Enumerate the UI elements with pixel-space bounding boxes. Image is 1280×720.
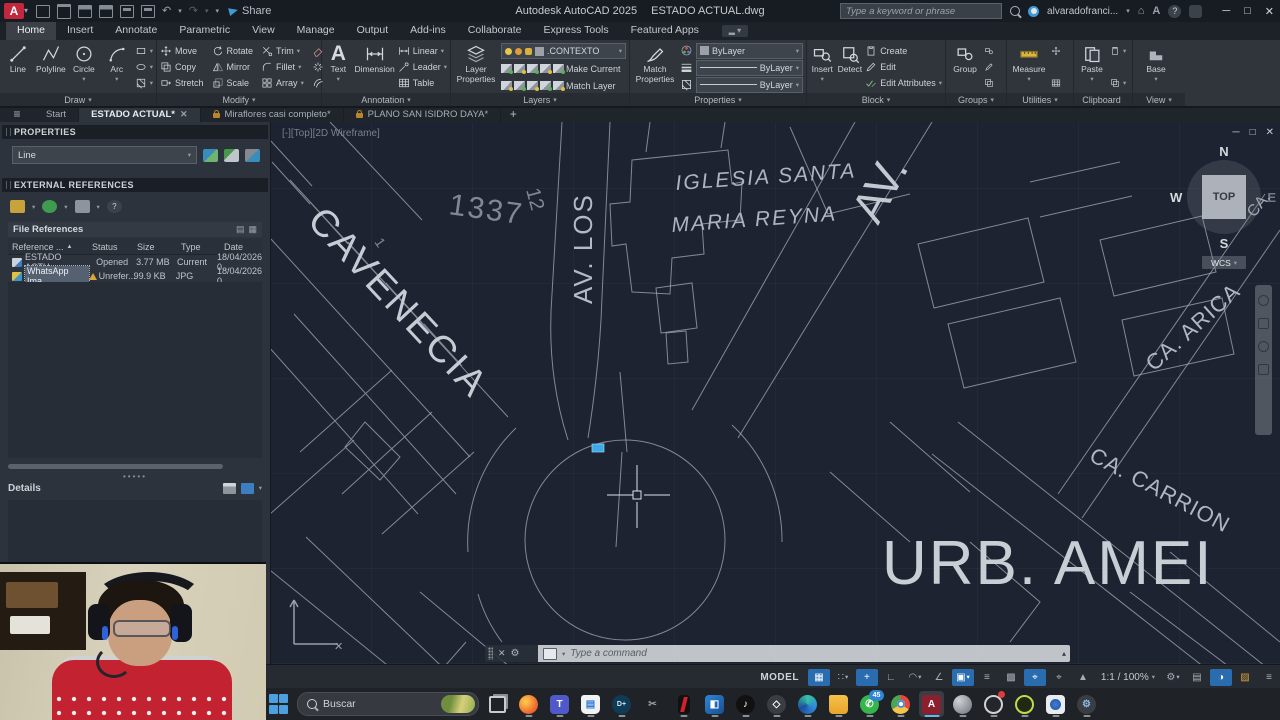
rotate-tool[interactable]: Rotate: [212, 44, 254, 58]
layer-walk-icon[interactable]: [501, 81, 512, 90]
make-current-icon[interactable]: [553, 64, 564, 73]
match-layer-label[interactable]: Match Layer: [566, 81, 616, 91]
object-snap-icon[interactable]: ▣▾: [952, 669, 974, 686]
command-placeholder[interactable]: Type a command: [570, 648, 647, 659]
clean-screen-icon[interactable]: ◑: [1210, 669, 1232, 686]
groups-panel-label[interactable]: Groups: [946, 93, 1006, 106]
layer-isolate-icon[interactable]: [501, 64, 512, 73]
file-explorer-icon[interactable]: [826, 691, 851, 717]
recording-dot: [998, 691, 1005, 698]
array-tool[interactable]: Array▾: [261, 76, 304, 90]
line-tool[interactable]: Line: [3, 42, 33, 93]
file-tab-plano-san-isidro[interactable]: PLANO SAN ISIDRO DAYA*: [344, 106, 502, 122]
microsoft-store-icon[interactable]: ▤: [578, 691, 603, 717]
maximize-button[interactable]: □: [1244, 5, 1251, 18]
xref-help-icon[interactable]: ?: [107, 200, 122, 213]
navigation-bar[interactable]: [1255, 285, 1272, 435]
ribbon-tab-bar: Home Insert Annotate Parametric View Man…: [0, 22, 1280, 40]
panel-clipboard: Paste▾ ▾ ▾ Clipboard: [1074, 40, 1133, 106]
tab-collaborate[interactable]: Collaborate: [457, 22, 533, 40]
tiktok-icon[interactable]: ♪: [733, 691, 758, 717]
table-tool[interactable]: Table: [398, 76, 447, 90]
details-area: [8, 500, 262, 564]
drawing-close-icon[interactable]: ✕: [1266, 127, 1274, 138]
edit-attributes-button[interactable]: Edit Attributes▾: [865, 76, 942, 90]
viewcube-wcs-menu[interactable]: WCS▾: [1202, 256, 1246, 269]
group-edit-button[interactable]: [984, 60, 994, 74]
window-title: Autodesk AutoCAD 2025 ESTADO ACTUAL.dwg: [515, 5, 764, 17]
mirror-tool[interactable]: Mirror: [212, 60, 254, 74]
move-tool[interactable]: Move: [160, 44, 204, 58]
search-highlight-thumbnail[interactable]: [441, 695, 475, 713]
edge-icon[interactable]: [795, 691, 820, 717]
search-label: Buscar: [323, 698, 356, 710]
print-icon[interactable]: [141, 5, 155, 18]
undo-caret-icon[interactable]: ▾: [178, 8, 182, 15]
file-tab-bar: ≡ Start ESTADO ACTUAL*✕ Miraflores casi …: [0, 106, 1280, 122]
save-as-icon[interactable]: [99, 5, 113, 18]
layer-on-tool-icon[interactable]: [527, 81, 538, 90]
new-file-icon[interactable]: [36, 5, 50, 18]
layer-on-icon: [505, 48, 512, 55]
match-properties-button[interactable]: Match Properties: [633, 42, 677, 93]
layer-unisolate-icon[interactable]: [514, 64, 525, 73]
cad-drawing: [-][Top][2D Wireframe] CAVENECIA 1337 12…: [270, 122, 1280, 664]
autodesk-icon[interactable]: A: [1152, 6, 1160, 17]
3d-object-snap-icon[interactable]: ⌖: [1048, 669, 1070, 686]
details-header[interactable]: Details ▾: [8, 480, 262, 496]
measure-button[interactable]: Measure▾: [1010, 42, 1048, 93]
viewcube-south[interactable]: S: [1176, 236, 1272, 251]
pan-icon[interactable]: [1258, 318, 1269, 329]
ungroup-button[interactable]: [984, 44, 994, 58]
zoom-extents-icon[interactable]: [1258, 341, 1269, 352]
district-label-urb: URB. AMEI: [882, 529, 1214, 598]
block-panel-label[interactable]: Block: [807, 93, 945, 106]
tab-output[interactable]: Output: [346, 22, 400, 40]
refresh-icon[interactable]: [42, 200, 57, 213]
utilities-panel-label[interactable]: Utilities: [1007, 93, 1073, 106]
teams-icon[interactable]: T: [547, 691, 572, 717]
layer-lock-icon: [525, 48, 532, 55]
lot-number-1337: 1337: [447, 188, 526, 231]
grid-toggle-icon[interactable]: ▦: [808, 669, 830, 686]
copy-tool[interactable]: Copy: [160, 60, 204, 74]
warning-icon: [89, 273, 97, 280]
layer-properties-button[interactable]: Layer Properties: [454, 42, 498, 93]
command-history-toggle-icon[interactable]: ▴: [1058, 645, 1070, 662]
settings-icon[interactable]: ⚙: [1074, 691, 1099, 717]
open-file-icon[interactable]: [57, 4, 71, 19]
command-customize-icon[interactable]: ⚙: [511, 648, 520, 659]
make-current-label[interactable]: Make Current: [566, 64, 621, 74]
file-tab-start[interactable]: Start: [34, 106, 79, 122]
viewcube[interactable]: N W E TOP S WCS▾: [1176, 144, 1272, 270]
headset-mic: [96, 646, 132, 678]
autocad-taskbar-icon[interactable]: A: [919, 691, 944, 717]
modify-panel-label[interactable]: Modify: [157, 93, 321, 106]
share-label: Share: [242, 5, 271, 17]
leader-tool[interactable]: Leader▾: [398, 60, 447, 74]
disney-plus-icon[interactable]: D+: [609, 691, 634, 717]
undo-icon[interactable]: ↶: [162, 6, 171, 17]
draw-panel-label[interactable]: Draw: [0, 93, 156, 106]
linetype-icon: [680, 78, 693, 91]
tree-view-icon[interactable]: ▦: [248, 224, 257, 235]
create-block-button[interactable]: Create: [865, 44, 942, 58]
clipboard-panel-label[interactable]: Clipboard: [1074, 93, 1132, 106]
layer-select[interactable]: .CONTEXTO ▾: [501, 43, 626, 59]
change-path-icon[interactable]: [75, 200, 90, 213]
help-icon[interactable]: ?: [1168, 5, 1181, 18]
tab-annotate[interactable]: Annotate: [104, 22, 168, 40]
base-view-button[interactable]: Base▾: [1136, 42, 1176, 93]
match-layer-icon[interactable]: [553, 81, 564, 90]
full-navigation-wheel-icon[interactable]: [1258, 295, 1269, 306]
graphics-performance-icon[interactable]: ▨: [1234, 669, 1256, 686]
list-view-icon[interactable]: ▤: [236, 224, 245, 235]
layer-freeze-icon: [515, 48, 522, 55]
unity-icon[interactable]: ◇: [764, 691, 789, 717]
user-caret-icon[interactable]: ▾: [1126, 8, 1130, 15]
file-tab-miraflores[interactable]: Miraflores casi completo*: [201, 106, 344, 122]
street-label-ca-arica: CA. ARICA: [1141, 278, 1245, 375]
file-references-header: File References ▤▦: [8, 222, 262, 237]
street-label-av-los: AV. LOS: [568, 193, 598, 304]
share-button[interactable]: Share: [229, 5, 271, 17]
polyline-tool[interactable]: Polyline: [36, 42, 66, 93]
app-title: Autodesk AutoCAD 2025: [515, 5, 637, 17]
whatsapp-icon[interactable]: ✆45: [857, 691, 882, 717]
object-type-select[interactable]: Line▾: [12, 146, 197, 164]
tab-parametric[interactable]: Parametric: [168, 22, 241, 40]
viewcube-north[interactable]: N: [1176, 144, 1272, 159]
table-row[interactable]: WhatsApp Ima... Unrefer... 99.9 KB JPG 1…: [8, 269, 262, 283]
ribbon-display-toggle[interactable]: ▂ ▾: [722, 25, 748, 37]
file-references-list-area[interactable]: [8, 282, 262, 458]
plot-icon[interactable]: [120, 5, 134, 18]
firefox-icon[interactable]: [516, 691, 541, 717]
properties-palette-header[interactable]: PROPERTIES: [2, 125, 268, 139]
panel-modify: Move Copy Stretch Rotate Mirror Scale Tr…: [157, 40, 322, 106]
lineweight-icon: [680, 61, 693, 74]
group-select-toggle[interactable]: [984, 76, 994, 90]
help-search-input[interactable]: [840, 3, 1002, 19]
arc-tool[interactable]: Arc▾: [102, 42, 132, 93]
horizontal-scrollbar[interactable]: [8, 464, 223, 469]
search-icon: [307, 699, 317, 709]
feedback-icon[interactable]: [1189, 5, 1202, 18]
app-menu-caret-icon[interactable]: ▾: [24, 7, 28, 15]
recent-commands-icon[interactable]: [543, 648, 557, 660]
object-color-select[interactable]: ByLayer▾: [696, 43, 803, 59]
steam-icon[interactable]: [950, 691, 975, 717]
quick-calc-button[interactable]: [1051, 76, 1061, 90]
fillet-tool[interactable]: Fillet▾: [261, 60, 304, 74]
tab-featured-apps[interactable]: Featured Apps: [620, 22, 710, 40]
drawing-minimize-icon[interactable]: ─: [1232, 127, 1239, 138]
layer-freeze-tool-icon[interactable]: [527, 64, 538, 73]
orbit-icon[interactable]: [1258, 364, 1269, 375]
layer-thaw-icon[interactable]: [514, 81, 525, 90]
selection-grip[interactable]: [592, 444, 604, 452]
copilot-icon[interactable]: [1043, 691, 1068, 717]
file-tabs-menu-icon[interactable]: ≡: [0, 106, 34, 122]
color-wheel-icon: [680, 44, 693, 57]
panel-block: Insert▾ Detect Create Edit Edit Attribut…: [807, 40, 946, 106]
tab-express-tools[interactable]: Express Tools: [532, 22, 619, 40]
select-similar-icon[interactable]: [224, 149, 239, 162]
minimize-button[interactable]: ─: [1222, 5, 1230, 18]
pin-tool-icon[interactable]: ✂: [640, 691, 665, 717]
current-layer-name: .CONTEXTO: [547, 46, 616, 56]
signed-in-user[interactable]: alvaradofranci...: [1047, 6, 1118, 17]
obs-icon[interactable]: [981, 691, 1006, 717]
add-to-selection-icon[interactable]: [203, 149, 218, 162]
viewcube-east[interactable]: E: [1267, 190, 1276, 205]
isolate-objects-icon[interactable]: ▤: [1186, 669, 1208, 686]
ortho-toggle-icon[interactable]: ∟: [880, 669, 902, 686]
panel-draw: Line Polyline Circle▾ Arc▾ ▾ ▾ ▾ Draw: [0, 40, 157, 106]
title-bar: ▾ ↶ ▾ ↷ ▾ ▾ Share Autodesk AutoCAD 2025 …: [0, 0, 1280, 22]
redo-caret-icon[interactable]: ▾: [205, 8, 209, 15]
tab-home[interactable]: Home: [6, 22, 56, 40]
glasses: [113, 620, 171, 637]
object-snap-tracking-icon[interactable]: ⌖: [1024, 669, 1046, 686]
isodraft-icon[interactable]: ∠: [928, 669, 950, 686]
share-icon: [228, 6, 239, 16]
viewport-label[interactable]: [-][Top][2D Wireframe]: [282, 128, 380, 139]
drawing-restore-icon[interactable]: □: [1250, 127, 1256, 138]
close-tab-icon[interactable]: ✕: [180, 109, 188, 120]
paste-button[interactable]: Paste▾: [1077, 42, 1107, 93]
dynamic-input-icon[interactable]: +: [856, 669, 878, 686]
lock-icon: [356, 113, 363, 118]
file-tab-estado-actual[interactable]: ESTADO ACTUAL*✕: [79, 106, 200, 122]
redo-icon[interactable]: ↷: [189, 6, 198, 17]
details-view-icon[interactable]: [223, 483, 236, 494]
detect-block-button[interactable]: Detect: [838, 42, 863, 93]
start-button[interactable]: [266, 691, 291, 717]
tab-addins[interactable]: Add-ins: [399, 22, 457, 40]
trim-tool[interactable]: Trim▾: [261, 44, 304, 58]
command-close-icon[interactable]: ✕: [498, 648, 506, 659]
text-icon: A: [331, 44, 346, 64]
webcam-overlay: [0, 562, 266, 720]
edit-block-button[interactable]: Edit: [865, 60, 942, 74]
search-icon[interactable]: [1010, 6, 1020, 16]
save-icon[interactable]: [78, 5, 92, 18]
task-view-button[interactable]: [485, 691, 510, 717]
taskbar-search[interactable]: Buscar: [297, 692, 479, 716]
tab-view[interactable]: View: [241, 22, 286, 40]
panel-annotation: AText▾ Dimension Linear▾ Leader▾ Table A…: [322, 40, 451, 106]
image-file-icon: [12, 272, 22, 281]
transparency-icon[interactable]: ▩: [1000, 669, 1022, 686]
lot-number-12: 12: [521, 186, 548, 213]
model-space-button[interactable]: MODEL: [753, 672, 806, 683]
layer-off-icon[interactable]: [540, 64, 551, 73]
stretch-tool[interactable]: Stretch: [160, 76, 204, 90]
quick-access-toolbar: ↶ ▾ ↷ ▾ ▾: [36, 4, 219, 19]
screen: ▾ ↶ ▾ ↷ ▾ ▾ Share Autodesk AutoCAD 2025 …: [0, 0, 1280, 720]
panel-properties: Match Properties ByLayer▾ ByLayer▾ ByLay…: [630, 40, 807, 106]
viewcube-west[interactable]: W: [1170, 190, 1182, 205]
panel-layers: Layer Properties .CONTEXTO ▾: [451, 40, 630, 106]
ribbon: Line Polyline Circle▾ Arc▾ ▾ ▾ ▾ Draw Mo…: [0, 40, 1280, 108]
ellipse-tool[interactable]: ▾: [135, 60, 153, 74]
annotation-panel-label[interactable]: Annotation: [322, 93, 450, 106]
workspace-switching-icon[interactable]: ⚙▾: [1162, 669, 1184, 686]
properties-panel-label[interactable]: Properties: [630, 93, 806, 106]
layers-panel-label[interactable]: Layers: [451, 93, 629, 106]
tab-manage[interactable]: Manage: [286, 22, 346, 40]
label-iglesia-line2: MARIA REYNA: [671, 202, 838, 237]
hatch-tool[interactable]: ▾: [135, 76, 153, 90]
pick-objects-icon[interactable]: [245, 149, 260, 162]
panel-utilities: Measure▾ Utilities: [1007, 40, 1074, 106]
drawing-window-controls: ─ □ ✕: [1232, 127, 1274, 138]
insert-block-button[interactable]: Insert▾: [810, 42, 835, 93]
cart-icon[interactable]: ⌂: [1138, 6, 1145, 17]
netflix-icon[interactable]: [671, 691, 696, 717]
tab-insert[interactable]: Insert: [56, 22, 104, 40]
annotation-visibility-icon[interactable]: ▲: [1072, 669, 1094, 686]
wallet-icon[interactable]: ◧: [702, 691, 727, 717]
linear-dimension-tool[interactable]: Linear▾: [398, 44, 447, 58]
command-input-area[interactable]: ▾ Type a command: [538, 645, 1058, 662]
xref-palette-header[interactable]: EXTERNAL REFERENCES: [2, 178, 268, 192]
camera-app-icon[interactable]: [1012, 691, 1037, 717]
lock-icon: [213, 113, 220, 118]
whatsapp-badge: 45: [869, 690, 884, 701]
avatar[interactable]: [1028, 6, 1039, 17]
chrome-icon[interactable]: [888, 691, 913, 717]
autocad-logo-icon[interactable]: [4, 3, 24, 19]
panel-groups: Group Groups: [946, 40, 1007, 106]
circle-tool[interactable]: Circle▾: [69, 42, 99, 93]
attach-xref-icon[interactable]: [10, 200, 25, 213]
snap-toggle-icon[interactable]: ∷▾: [832, 669, 854, 686]
document-title: ESTADO ACTUAL.dwg: [651, 5, 765, 17]
viewcube-top-face[interactable]: TOP: [1202, 175, 1246, 219]
cut-button[interactable]: ▾: [1110, 44, 1126, 58]
copy-clip-button[interactable]: ▾: [1110, 76, 1126, 90]
svg-text:✕: ✕: [334, 641, 343, 653]
command-line[interactable]: ✕ ⚙ ▾ Type a command ▴: [485, 645, 1070, 662]
xref-toolbar: ▾ ▾ ▾ ?: [10, 200, 122, 213]
street-label-ca-carrion: CA. CARRION: [1086, 442, 1235, 537]
qat-customize-icon[interactable]: ▾: [215, 8, 219, 15]
linetype-select[interactable]: ByLayer▾: [696, 77, 803, 93]
rectangle-tool[interactable]: ▾: [135, 44, 153, 58]
quick-select-button[interactable]: [1051, 44, 1061, 58]
layer-unlock-icon[interactable]: [540, 81, 551, 90]
new-tab-button[interactable]: +: [501, 106, 525, 122]
view-panel-label[interactable]: View: [1133, 93, 1185, 106]
annotation-scale-button[interactable]: 1:1 / 100%▾: [1096, 672, 1160, 683]
drawing-canvas[interactable]: [-][Top][2D Wireframe] CAVENECIA 1337 12…: [270, 122, 1280, 664]
label-iglesia-line1: IGLESIA SANTA: [675, 159, 857, 195]
lineweight-display-icon[interactable]: ≡: [976, 669, 998, 686]
close-button[interactable]: ✕: [1265, 5, 1274, 18]
text-tool[interactable]: AText▾: [325, 42, 352, 93]
scale-tool[interactable]: Scale: [212, 76, 254, 90]
polar-tracking-icon[interactable]: ◠▾: [904, 669, 926, 686]
grip-dots-icon[interactable]: [488, 647, 493, 660]
layer-color-swatch: [535, 47, 544, 56]
command-line-grip[interactable]: ✕ ⚙: [485, 645, 538, 662]
group-button[interactable]: Group: [949, 42, 981, 93]
preview-view-icon[interactable]: [241, 483, 254, 494]
dimension-tool[interactable]: Dimension: [355, 42, 395, 93]
lineweight-select[interactable]: ByLayer▾: [696, 60, 803, 76]
customization-icon[interactable]: ≡: [1258, 669, 1280, 686]
ucs-icon: ✕: [282, 596, 352, 656]
panel-view: Base▾ View: [1133, 40, 1185, 106]
